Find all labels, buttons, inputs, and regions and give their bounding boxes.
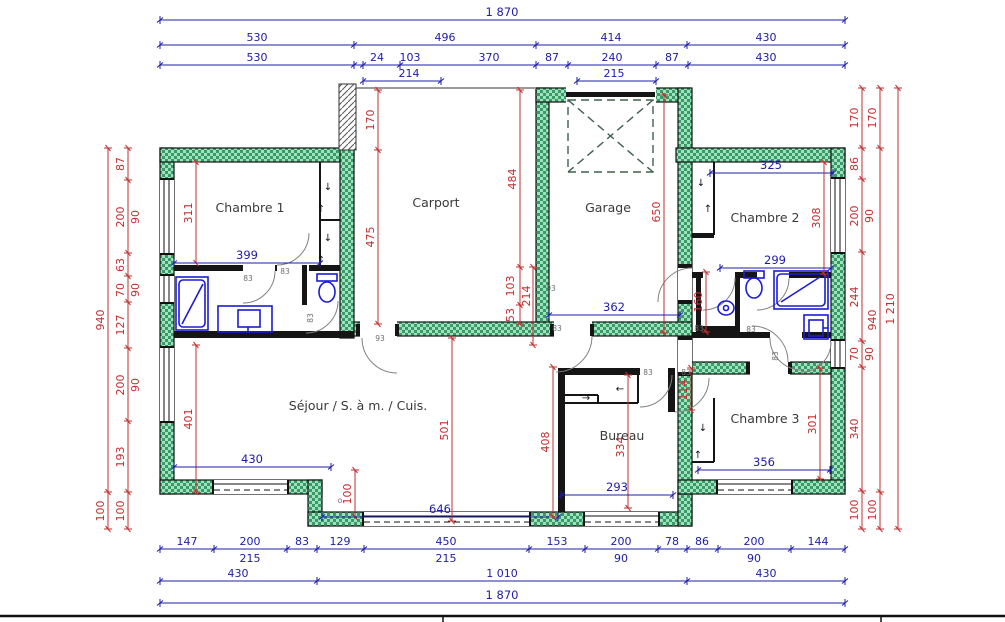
dim-label: 450 <box>436 535 457 548</box>
dim-label: 293 <box>606 480 628 494</box>
dim-label: 401 <box>182 409 195 430</box>
dim-label: 90 <box>614 552 628 565</box>
dim-label: 70 <box>848 347 861 361</box>
dim-label: 530 <box>247 51 268 64</box>
dim-label: 299 <box>764 253 786 267</box>
dim-label: 53 <box>504 308 517 322</box>
vanity-sink <box>218 306 272 332</box>
dim-label: 70 <box>114 283 127 297</box>
dimensions-top: 1 870 530 496 414 430 530 24 103 370 87 … <box>160 5 845 81</box>
dim-label: 340 <box>848 419 861 440</box>
dim-label: 147 <box>177 535 198 548</box>
window <box>160 178 174 255</box>
window <box>160 274 174 304</box>
window <box>212 480 289 494</box>
dim-label: 170 <box>866 108 879 129</box>
window <box>160 346 174 423</box>
dim-label: 87 <box>545 51 559 64</box>
door-width-label: 93 <box>375 334 385 343</box>
dim-label: 200 <box>240 535 261 548</box>
closet-arrow-icon: ↓ <box>324 233 332 244</box>
window <box>831 339 845 369</box>
dim-label: 408 <box>539 432 552 453</box>
dim-label: 308 <box>810 208 823 229</box>
dim-label: 193 <box>114 447 127 468</box>
dim-label: 530 <box>247 31 268 44</box>
closet-arrow-icon: ← <box>616 384 624 395</box>
dim-label: 1 010 <box>486 567 518 580</box>
closet-arrow-icon: ↓ <box>697 178 705 189</box>
dim-label: 100 <box>848 500 861 521</box>
dim-label: 430 <box>756 567 777 580</box>
door-width-label: 83 <box>306 313 315 323</box>
dim-label: 240 <box>602 51 623 64</box>
dim-label: 83 <box>295 535 309 548</box>
closet-arrow-icon: ↓ <box>699 423 707 434</box>
dim-label: 650 <box>650 202 663 223</box>
dim-label: 100 <box>341 484 354 505</box>
dim-label: 399 <box>236 248 258 262</box>
dim-label: 414 <box>601 31 622 44</box>
dim-label: 215 <box>436 552 457 565</box>
closet-arrow-icon: ↑ <box>317 204 325 215</box>
door-width-label: 83 <box>694 324 704 333</box>
dim-label: 144 <box>808 535 829 548</box>
room-label-chambre3: Chambre 3 <box>731 411 800 426</box>
closet-arrow-icon: ↑ <box>704 204 712 215</box>
dim-label: 160 <box>692 292 705 313</box>
dim-label: 200 <box>848 206 861 227</box>
dim-label: 114 <box>677 380 690 401</box>
dim-label: 87 <box>114 157 127 171</box>
dim-label: 200 <box>611 535 632 548</box>
dim-label: 90 <box>129 210 142 224</box>
dim-label: 646 <box>429 502 451 516</box>
dim-label: 484 <box>506 169 519 190</box>
dim-label: 301 <box>806 414 819 435</box>
dim-label: 87 <box>665 51 679 64</box>
door-width-label: 83 <box>643 368 653 377</box>
dim-label: 170 <box>848 108 861 129</box>
room-label-chambre1: Chambre 1 <box>216 200 285 215</box>
door-width-label: 83 <box>552 324 562 333</box>
dim-label: 78 <box>665 535 679 548</box>
dim-label: 90 <box>129 378 142 392</box>
dim-label: 430 <box>241 452 263 466</box>
dim-label: 214 <box>520 286 533 307</box>
room-label-sejour: Séjour / S. à m. / Cuis. <box>289 398 427 413</box>
window <box>716 480 793 494</box>
marker-circle: o <box>338 496 343 505</box>
dim-label: 103 <box>400 51 421 64</box>
dim-label: 153 <box>547 535 568 548</box>
dim-label: 356 <box>753 455 775 469</box>
dim-label: 200 <box>744 535 765 548</box>
dim-label: 63 <box>114 258 127 272</box>
room-label-garage: Garage <box>585 200 631 215</box>
dim-label: 311 <box>182 203 195 224</box>
floorplan-drawing: ↓ ↑ ↓ ↑ ↓ ↑ ↓ ↑ ← → <box>0 0 1005 622</box>
door-width-label: 83 <box>746 325 756 334</box>
dim-label: 100 <box>866 500 879 521</box>
dim-label: 940 <box>866 310 879 331</box>
room-label-chambre2: Chambre 2 <box>731 210 800 225</box>
dim-label: 86 <box>695 535 709 548</box>
dim-label: 1 870 <box>486 5 519 19</box>
dimensions-left: 87 200 90 63 70 90 127 200 90 193 100 94… <box>94 148 142 529</box>
dim-label: 325 <box>760 158 782 172</box>
closet-arrow-icon: ↑ <box>694 450 702 461</box>
dim-label: 90 <box>747 552 761 565</box>
dim-label: 90 <box>863 347 876 361</box>
dim-label: 362 <box>603 300 625 314</box>
window <box>583 512 660 526</box>
closet-arrow-icon: ↑ <box>317 255 325 266</box>
dim-label: 215 <box>604 67 625 80</box>
dim-label: 214 <box>399 67 420 80</box>
toilet <box>317 274 337 302</box>
dim-label: 1 210 <box>884 293 897 325</box>
door-width-label: 83 <box>243 274 253 283</box>
room-label-carport: Carport <box>412 195 459 210</box>
dim-label: 430 <box>756 51 777 64</box>
dim-label: 430 <box>756 31 777 44</box>
door-width-label: 83 <box>681 368 691 377</box>
hand-basin <box>718 301 734 315</box>
dim-label: 501 <box>438 420 451 441</box>
dim-label: 244 <box>848 287 861 308</box>
dim-label: 90 <box>129 283 142 297</box>
window <box>831 177 845 254</box>
dim-label: 24 <box>370 51 384 64</box>
door-width-label: 93 <box>546 284 556 293</box>
dim-label: 86 <box>848 157 861 171</box>
dim-label: 90 <box>863 209 876 223</box>
dim-label: 1 870 <box>486 588 519 602</box>
dim-label: 475 <box>364 227 377 248</box>
closet-arrow-icon: ↓ <box>324 182 332 193</box>
dim-label: 370 <box>479 51 500 64</box>
title-block-border <box>0 616 1005 622</box>
closet-arrow-icon: → <box>582 393 590 404</box>
shower <box>176 277 208 330</box>
dim-label: 215 <box>240 552 261 565</box>
dim-label: 129 <box>330 535 351 548</box>
room-label-bureau: Bureau <box>600 428 645 443</box>
dim-label: 127 <box>114 315 127 336</box>
dim-label: 940 <box>94 310 107 331</box>
door-width-label: 83 <box>771 351 780 361</box>
windows <box>160 177 845 526</box>
dim-label: 100 <box>114 501 127 522</box>
floorplan-canvas: ↓ ↑ ↓ ↑ ↓ ↑ ↓ ↑ ← → <box>0 0 1005 622</box>
garage-door <box>566 92 655 172</box>
dim-label: 496 <box>435 31 456 44</box>
dim-label: 200 <box>114 375 127 396</box>
dimensions-bottom: 147 200 83 129 450 153 200 78 86 200 144… <box>160 535 845 603</box>
dimensions-right: 170 86 200 90 244 70 90 340 100 170 940 … <box>848 88 898 529</box>
dim-label: 170 <box>364 110 377 131</box>
door-width-label: 83 <box>280 267 290 276</box>
dim-label: 103 <box>504 276 517 297</box>
dim-label: 100 <box>94 501 107 522</box>
dim-label: 430 <box>228 567 249 580</box>
dim-label: 200 <box>114 207 127 228</box>
